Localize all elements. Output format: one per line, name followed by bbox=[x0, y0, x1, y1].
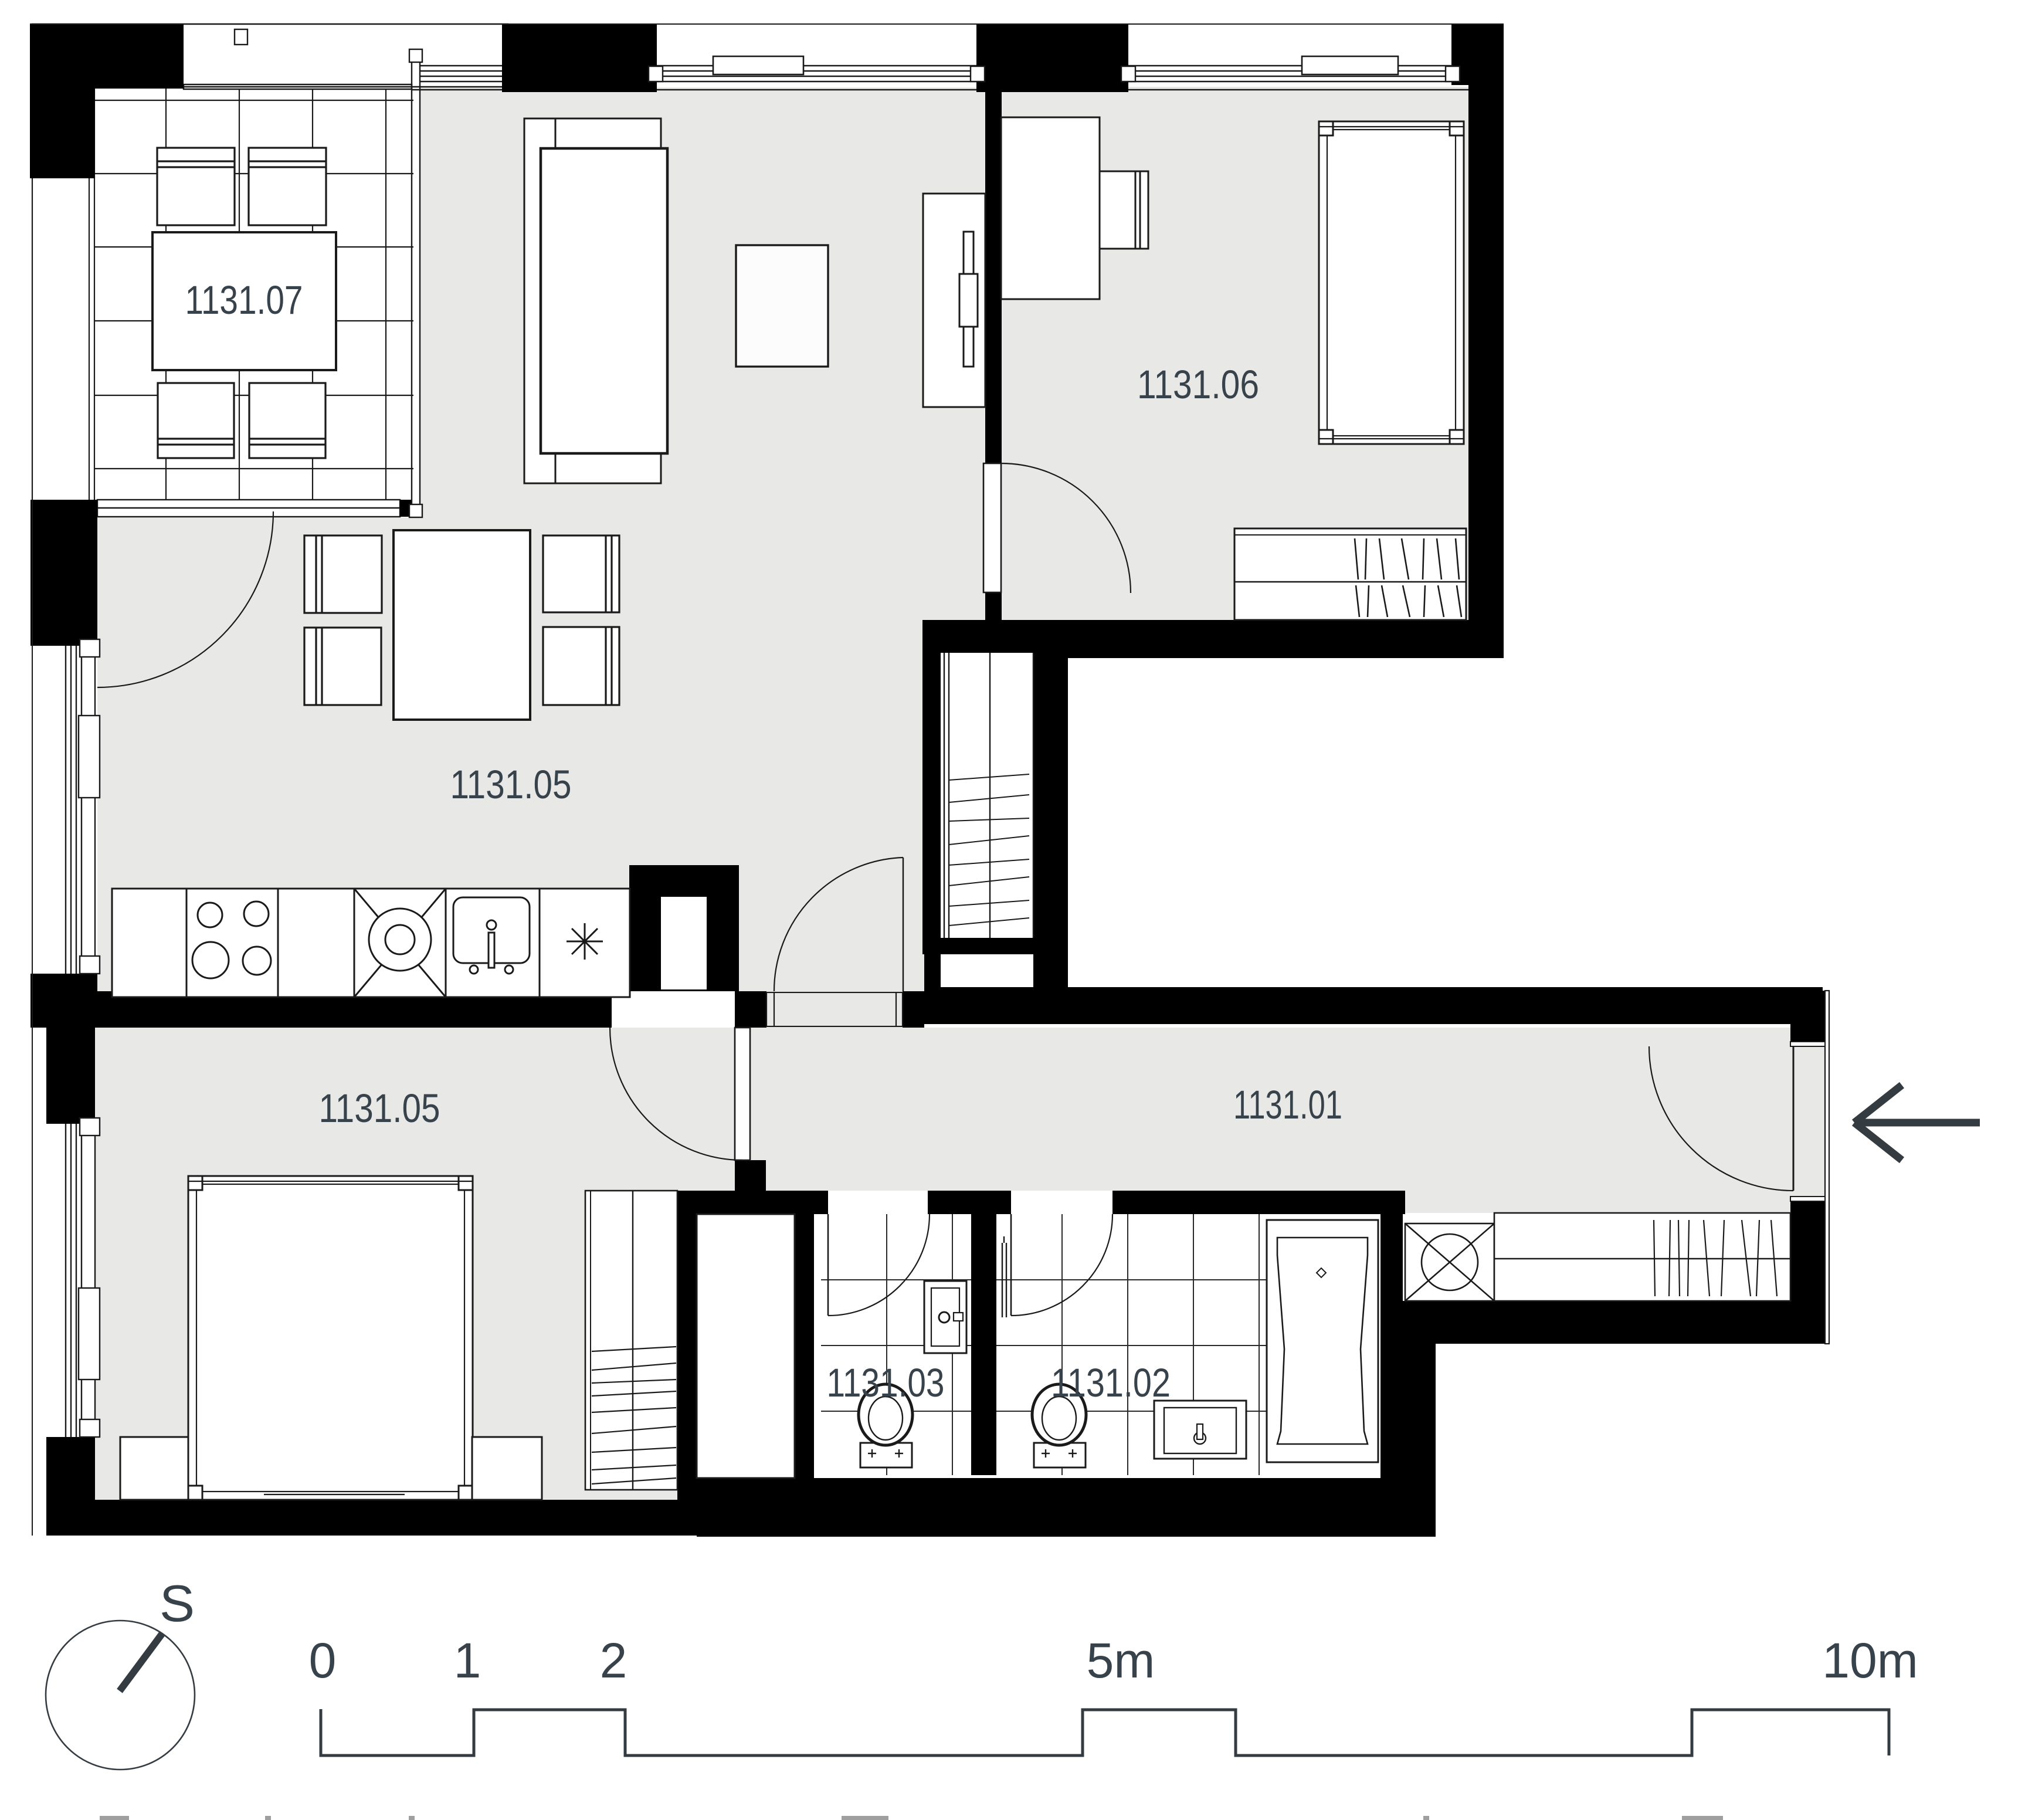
svg-text:1131.06: 1131.06 bbox=[1137, 362, 1259, 407]
svg-text:1131.02: 1131.02 bbox=[1051, 1360, 1171, 1405]
svg-text:10m: 10m bbox=[1822, 1633, 1918, 1688]
svg-text:0: 0 bbox=[309, 1633, 337, 1688]
svg-text:1131.01: 1131.01 bbox=[1233, 1082, 1342, 1127]
svg-text:1131.05: 1131.05 bbox=[450, 762, 572, 807]
svg-text:S: S bbox=[160, 1574, 195, 1632]
svg-text:1131.03: 1131.03 bbox=[827, 1360, 945, 1405]
svg-text:2: 2 bbox=[600, 1633, 627, 1688]
svg-text:1: 1 bbox=[454, 1633, 481, 1688]
svg-text:1131.07: 1131.07 bbox=[185, 277, 303, 323]
svg-text:5m: 5m bbox=[1087, 1633, 1155, 1688]
svg-text:1131.05: 1131.05 bbox=[319, 1086, 440, 1131]
